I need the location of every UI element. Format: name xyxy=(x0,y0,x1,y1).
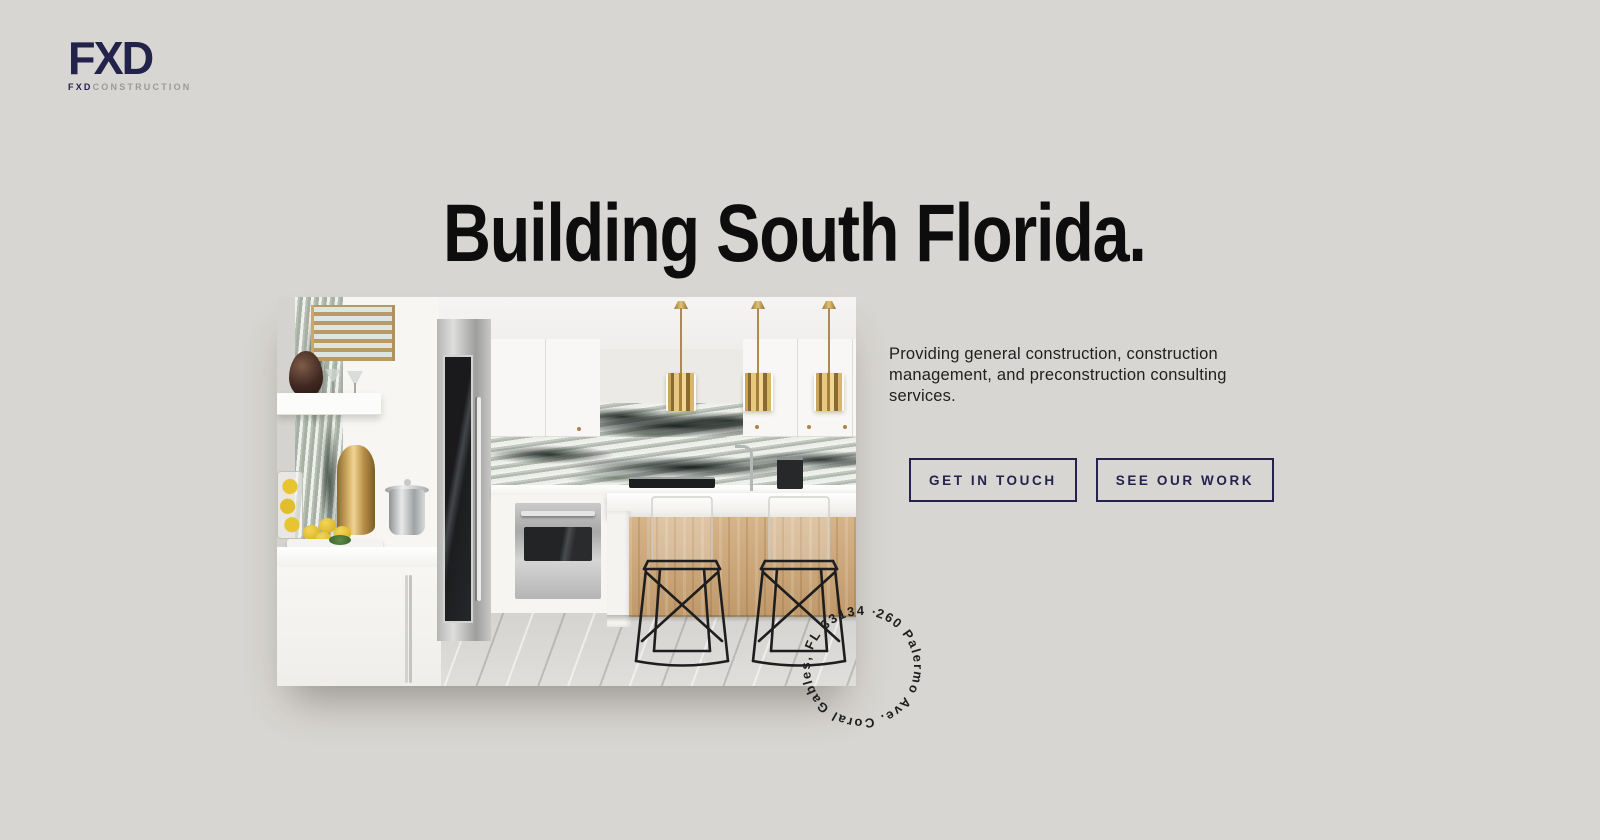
photo-upper-cabinets-left xyxy=(491,339,600,437)
photo-pendant-light xyxy=(666,301,696,411)
page-background: FXD FXDCONSTRUCTION Building South Flori… xyxy=(0,0,1600,840)
photo-gas-cooktop xyxy=(629,477,715,488)
hero-description: Providing general construction, construc… xyxy=(889,344,1289,407)
photo-island-end-panel xyxy=(607,511,631,627)
photo-cabinet-handle xyxy=(405,575,408,683)
pendant-shade xyxy=(666,373,696,411)
photo-oven-handle xyxy=(521,511,595,516)
see-our-work-button[interactable]: SEE OUR WORK xyxy=(1096,458,1274,502)
get-in-touch-button[interactable]: GET IN TOUCH xyxy=(909,458,1077,502)
photo-cabinet-knob xyxy=(807,425,811,429)
photo-ice-bucket-knob xyxy=(404,479,411,486)
photo-slat-rack xyxy=(311,305,395,361)
pendant-shade xyxy=(814,373,844,411)
photo-oven-window xyxy=(524,527,592,561)
address-badge-text: 260 Palermo Ave. Coral Gables, FL 33134 … xyxy=(784,589,941,746)
photo-espresso-machine xyxy=(777,457,803,489)
photo-left-cabinet xyxy=(277,567,441,686)
photo-fridge-glass-door xyxy=(443,355,473,623)
photo-herb-sprig xyxy=(329,535,351,545)
pendant-rod xyxy=(828,308,830,374)
photo-lemon-jar xyxy=(277,471,303,539)
photo-floating-shelf xyxy=(277,393,381,415)
photo-cabinet-knob xyxy=(577,427,581,431)
photo-cabinet-knob xyxy=(843,425,847,429)
photo-barstool-left xyxy=(634,493,730,669)
pendant-rod xyxy=(757,308,759,374)
photo-cabinet-knob xyxy=(755,425,759,429)
photo-ice-bucket xyxy=(389,489,425,535)
fxd-logo-mark: FXD xyxy=(68,40,189,78)
hero-title: Building South Florida. xyxy=(443,193,1310,275)
pendant-shade xyxy=(743,373,773,411)
photo-fridge-handle xyxy=(477,397,481,601)
pendant-rod xyxy=(680,308,682,374)
photo-pendant-light xyxy=(814,301,844,411)
kitchen-hero-photo xyxy=(277,297,856,686)
photo-brass-vase xyxy=(337,445,375,535)
fxd-logo[interactable]: FXD FXDCONSTRUCTION xyxy=(68,40,192,92)
photo-fridge-column xyxy=(437,319,491,641)
cta-button-row: GET IN TOUCH SEE OUR WORK xyxy=(909,458,1274,502)
photo-left-counter xyxy=(277,547,441,569)
photo-faucet xyxy=(735,445,753,491)
photo-dark-vase xyxy=(289,351,323,397)
photo-pendant-light xyxy=(743,301,773,411)
photo-wall-oven xyxy=(515,503,601,599)
